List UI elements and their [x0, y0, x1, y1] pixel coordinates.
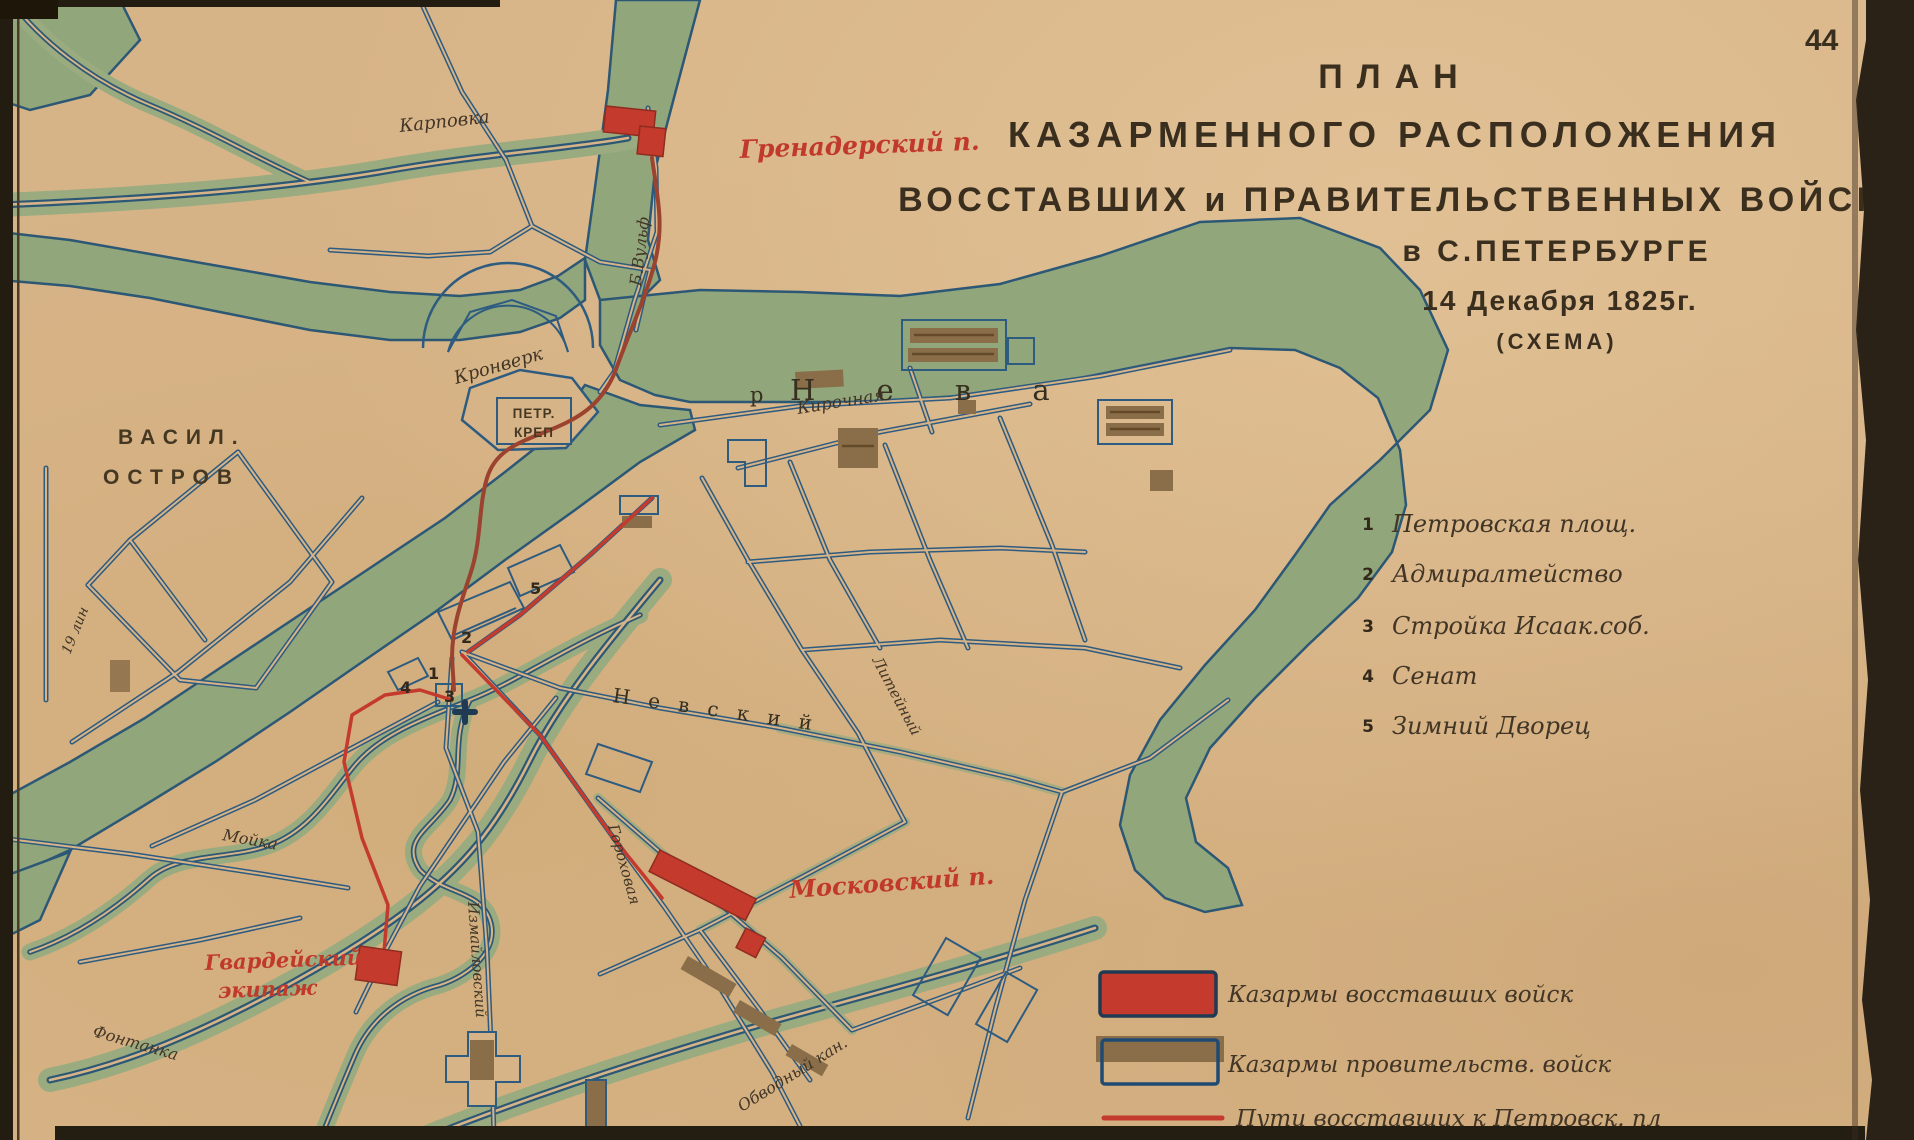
map-number-1: 1 [428, 664, 439, 683]
frame-bottom [55, 1126, 1865, 1140]
map-number-3: 3 [444, 687, 455, 706]
gov-barrack [470, 1040, 494, 1080]
gov-barrack [1150, 470, 1173, 491]
landmark-2-num: 2 [1362, 565, 1374, 585]
label-gvardeisky-1: Гвардейский [203, 945, 362, 976]
gov-barrack [838, 428, 878, 468]
frame-top [0, 0, 500, 7]
label-karpovka: Карповка [397, 107, 490, 137]
title-line3: ВОССТАВШИХ и ПРАВИТЕЛЬСТВЕННЫХ ВОЙСК. [898, 180, 1896, 219]
map-number-5: 5 [530, 579, 541, 598]
landmark-4-num: 4 [1362, 667, 1374, 687]
landmark-5-label: Зимний Дворец [1392, 712, 1591, 740]
map-number-2: 2 [461, 628, 472, 647]
landmark-2-label: Адмиралтейство [1390, 560, 1623, 588]
gov-barrack [681, 956, 737, 997]
label-petr-krep-1: ПЕТР. [513, 406, 556, 421]
gov-barrack [110, 660, 130, 692]
label-liteyny: Литейный [868, 653, 925, 739]
title-line6: (СХЕМА) [1496, 329, 1617, 354]
map-page: Карповка Гренадерский п. Б.Вульф Кронвер… [0, 0, 1914, 1140]
label-grenadersky: Гренадерский п. [738, 127, 980, 164]
landmark-5-num: 5 [1362, 717, 1374, 737]
gostiny-block [586, 744, 652, 792]
page-number: 44 [1805, 24, 1839, 57]
river-neva-main [600, 218, 1448, 912]
rebel-barrack-grenadersky-2 [637, 126, 666, 157]
landmark-3-label: Стройка Исаак.соб. [1392, 612, 1650, 640]
title-line2: КАЗАРМЕННОГО РАСПОЛОЖЕНИЯ [1008, 114, 1782, 155]
legend-rebel-swatch [1100, 972, 1216, 1016]
landmark-3-num: 3 [1362, 617, 1374, 637]
landmark-1-label: Петровская площ. [1391, 510, 1636, 538]
map-number-4: 4 [400, 678, 411, 697]
rebel-barrack-moskovsky-2 [736, 928, 766, 958]
label-neva-prefix: р [750, 383, 763, 407]
landmark-1-num: 1 [1362, 515, 1374, 535]
frame-left-line [17, 0, 20, 1140]
frame-corner [0, 0, 58, 19]
label-petr-krep-2: КРЕП [514, 425, 554, 440]
map-legend: Казармы восставших войск Казармы провите… [1096, 972, 1661, 1132]
legend-gov-label: Казармы провительств. войск [1227, 1052, 1611, 1078]
label-line19: 19 лин [59, 605, 92, 657]
map-labels: Карповка Гренадерский п. Б.Вульф Кронвер… [59, 107, 1076, 1116]
label-nevsky: Н е в с к и й [611, 683, 819, 736]
landmark-list: 1 Петровская площ. 2 Адмиралтейство 3 Ст… [1362, 510, 1650, 740]
label-vasil: ВАСИЛ. [118, 426, 246, 449]
frame-right-shadow [1852, 0, 1858, 1140]
legend-rebel-label: Казармы восставших войск [1227, 982, 1573, 1008]
frame-right [1856, 0, 1914, 1140]
title-line5: 14 Декабря 1825г. [1422, 285, 1697, 316]
title-line1: ПЛАН [1318, 58, 1471, 96]
gov-barrack [586, 1080, 606, 1128]
landmark-4-label: Сенат [1392, 662, 1477, 690]
title-line4: в С.ПЕТЕРБУРГЕ [1402, 235, 1711, 268]
label-gvardeisky-2: экипаж [217, 975, 318, 1003]
label-ostrov: ОСТРОВ [103, 466, 240, 489]
frame-left [0, 0, 13, 1140]
historic-map-svg: Карповка Гренадерский п. Б.Вульф Кронвер… [0, 0, 1914, 1140]
legend-gov-brown-fill [1106, 1044, 1214, 1062]
